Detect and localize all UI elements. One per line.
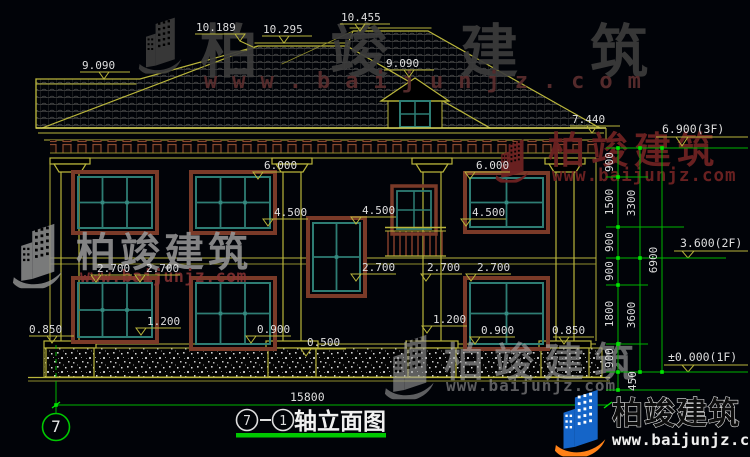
title-axis-to: 1 (279, 414, 287, 429)
window-1f-left-2 (191, 278, 275, 349)
dim-1200-b: 1.200 (433, 313, 466, 326)
dim-7-440: 7.440 (572, 113, 605, 126)
chain-3300: 3300 (625, 190, 638, 217)
dim-10-455: 10.455 (341, 11, 381, 24)
brand-logo: 柏竣建筑 www.baijunjz.com (555, 390, 750, 457)
watermark-url-text: www.baijunjz.com (446, 376, 616, 395)
axis-bubble-number: 7 (51, 417, 61, 436)
chain-6900: 6900 (647, 247, 660, 274)
watermark-url-text: www.baijunjz.com (552, 166, 737, 186)
window-stair (308, 218, 365, 296)
chain-3600: 3600 (625, 302, 638, 329)
drawing-canvas: 柏竣建筑 www.baijunjz.com 柏竣建筑 www.baijunjz.… (0, 0, 750, 457)
chain-900-d: 900 (603, 348, 616, 368)
chain-900-b: 900 (603, 232, 616, 252)
dim-6000-b: 6.000 (476, 159, 509, 172)
dim-2700-a: 2.700 (97, 262, 130, 275)
chain-900-c: 900 (603, 261, 616, 281)
dim-1200-a: 1.200 (147, 315, 180, 328)
dim-0850-a: 0.850 (29, 323, 62, 336)
watermark-logo-icon (21, 224, 54, 281)
dim-2700-c: 2.700 (362, 261, 395, 274)
chain-1500: 1500 (603, 189, 616, 216)
watermark-left: 柏竣建筑 www.baijunjz.com (13, 224, 252, 290)
dim-4500-a: 4.500 (274, 206, 307, 219)
cad-elevation-drawing: 柏竣建筑 www.baijunjz.com 柏竣建筑 www.baijunjz.… (0, 0, 750, 457)
logo-building-icon (564, 390, 598, 449)
level-mark-3f: 6.900(3F) (662, 122, 724, 136)
dim-2700-d: 2.700 (427, 261, 460, 274)
dim-6000-a: 6.000 (264, 159, 297, 172)
dim-9-090-dormer: 9.090 (386, 57, 419, 70)
dormer-window (400, 101, 430, 127)
title-axis-from: 7 (243, 414, 251, 429)
dim-0500: 0.500 (307, 336, 340, 349)
brand-name-text: 柏竣建筑 (612, 396, 740, 432)
dim-4500-b: 4.500 (362, 204, 395, 217)
dim-10-295: 10.295 (263, 23, 303, 36)
window-1f-left-1 (73, 278, 157, 342)
window-2f-left-1 (73, 172, 157, 233)
title-text: 轴立面图 (294, 408, 386, 435)
watermark-url-text: www.baijunjz.com (204, 69, 656, 94)
dim-0900-a: 0.900 (257, 323, 290, 336)
dim-overall-width: 15800 (290, 390, 325, 404)
dim-9-090-left: 9.090 (82, 59, 115, 72)
level-mark-2f: 3.600(2F) (680, 236, 742, 250)
dim-0850-b: 0.850 (552, 324, 585, 337)
dim-2700-b: 2.700 (146, 262, 179, 275)
watermark-logo-icon (393, 335, 426, 392)
dim-0900-b: 0.900 (481, 324, 514, 337)
dim-10-189: 10.189 (196, 21, 236, 34)
chain-1800: 1800 (603, 301, 616, 328)
level-mark-1f: ±0.000(1F) (668, 350, 737, 364)
chain-450: 450 (626, 371, 639, 391)
watermark-logo-icon (146, 18, 175, 68)
window-2f-left-2 (191, 172, 275, 233)
brand-url-text: www.baijunjz.com (612, 431, 750, 449)
window-1f-right (465, 278, 548, 349)
drawing-title: 7 1 轴立面图 (236, 408, 386, 438)
title-underline (236, 433, 386, 438)
chain-900-a: 900 (603, 152, 616, 172)
dim-2700-e: 2.700 (477, 261, 510, 274)
axis-bubble: 7 (43, 414, 70, 441)
dim-4500-c: 4.500 (472, 206, 505, 219)
